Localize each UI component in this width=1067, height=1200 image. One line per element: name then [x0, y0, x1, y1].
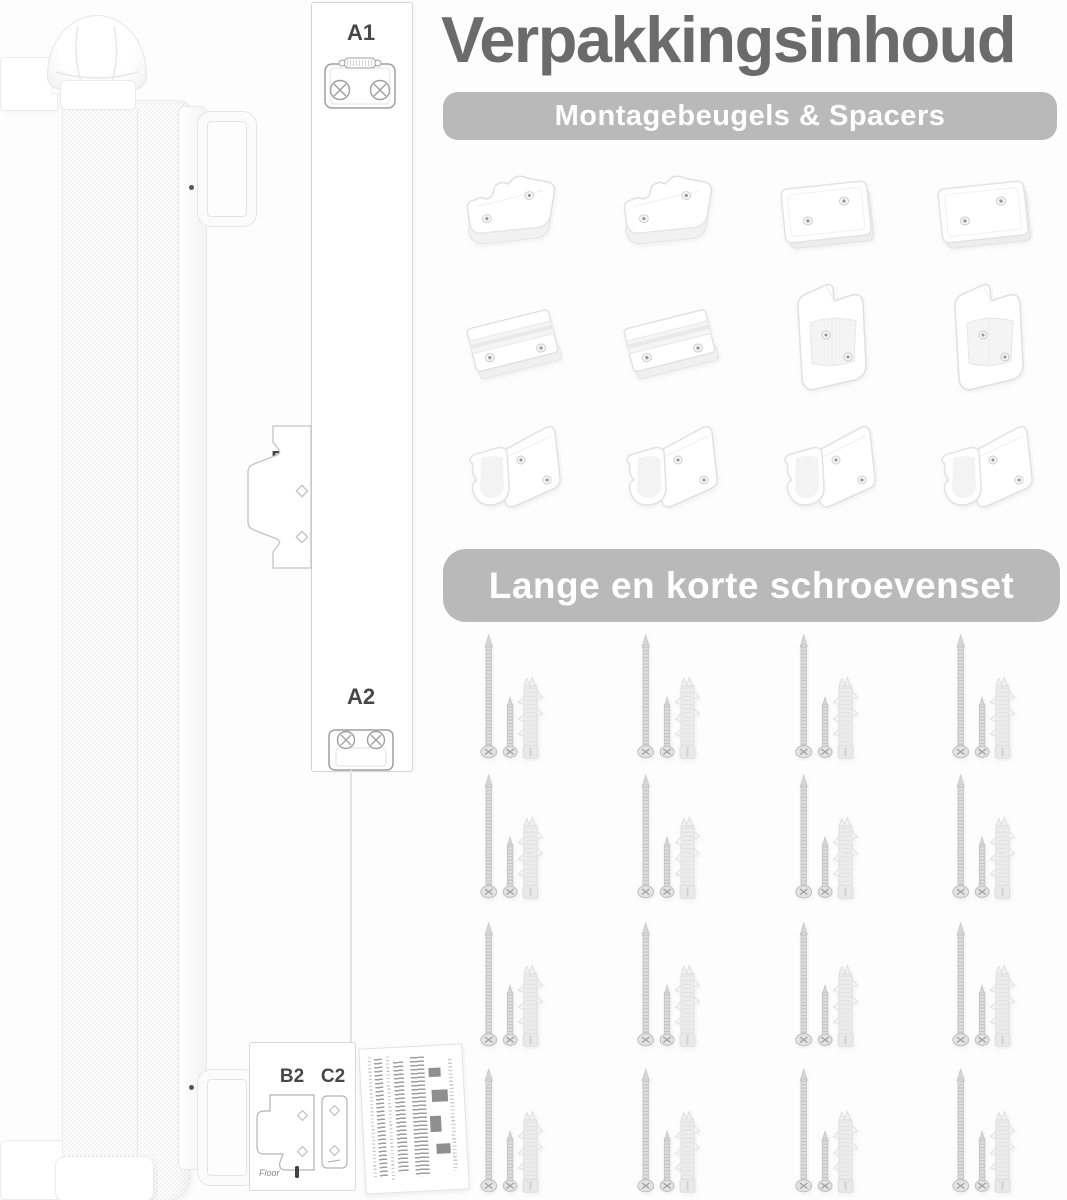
long-screw — [953, 775, 969, 898]
bracket-hook — [929, 420, 1037, 532]
package-contents-image: A1 B1 A2 B2 C2 Floor — [0, 0, 1067, 1200]
screw-set — [792, 632, 860, 762]
wall-plug — [833, 818, 857, 899]
long-screw — [481, 923, 497, 1046]
screw-grid — [432, 628, 1062, 1196]
wall-plug — [676, 1112, 700, 1193]
gate-dome-collar — [60, 80, 136, 110]
bracket-wavy-plate — [458, 165, 564, 253]
gate-roll-pedestal — [55, 1156, 154, 1200]
screw-set — [792, 772, 860, 902]
part-drawing-a1 — [322, 54, 398, 112]
part-label-c2: C2 — [315, 1066, 351, 1088]
part-label-a2: A2 — [311, 684, 411, 710]
bracket-channel — [456, 291, 566, 387]
long-screw — [638, 775, 654, 898]
screw-set — [949, 920, 1017, 1050]
part-drawing-c2 — [320, 1094, 350, 1176]
screw-set — [634, 920, 702, 1050]
long-screw — [638, 635, 654, 758]
short-screw — [818, 837, 832, 897]
screw-set — [477, 920, 545, 1050]
wall-plug — [833, 966, 857, 1047]
bracket-hook — [457, 420, 565, 532]
bracket-flat-plate — [771, 163, 881, 255]
gate-latch-bar — [178, 106, 207, 1170]
long-screw — [796, 775, 812, 898]
wall-plug — [991, 966, 1015, 1047]
short-screw — [503, 1131, 517, 1191]
bracket-flat-plate — [928, 163, 1038, 255]
wall-plug — [518, 818, 542, 899]
part-label-b2: B2 — [272, 1066, 312, 1088]
bracket-corner — [774, 279, 878, 399]
short-screw — [660, 697, 674, 757]
short-screw — [660, 837, 674, 897]
wall-plug — [991, 678, 1015, 759]
short-screw — [660, 1131, 674, 1191]
long-screw — [953, 923, 969, 1046]
short-screw — [975, 837, 989, 897]
screw-set — [792, 1066, 860, 1196]
screw-set — [477, 772, 545, 902]
short-screw — [818, 697, 832, 757]
gate-mesh-roll — [62, 100, 191, 1200]
latch-pin-bottom — [189, 1085, 194, 1090]
wall-plug — [518, 678, 542, 759]
short-screw — [975, 1131, 989, 1191]
short-screw — [975, 985, 989, 1045]
wall-plug — [676, 966, 700, 1047]
screw-set — [634, 632, 702, 762]
connector-line — [350, 770, 352, 1046]
long-screw — [796, 1069, 812, 1192]
part-drawing-a2 — [326, 722, 396, 774]
screw-set — [949, 632, 1017, 762]
short-screw — [503, 837, 517, 897]
short-screw — [503, 697, 517, 757]
long-screw — [638, 1069, 654, 1192]
bracket-wavy-plate — [615, 165, 721, 253]
wall-plug — [518, 1112, 542, 1193]
wall-plug — [518, 966, 542, 1047]
long-screw — [796, 635, 812, 758]
bracket-hook — [614, 420, 722, 532]
wall-plug — [676, 818, 700, 899]
bracket-channel — [613, 291, 723, 387]
gate-bottom-handle — [198, 1070, 256, 1185]
wall-plug — [676, 678, 700, 759]
latch-pin-top — [189, 185, 194, 190]
wall-plug — [991, 1112, 1015, 1193]
long-screw — [953, 1069, 969, 1192]
floor-label: Floor — [259, 1168, 293, 1178]
wall-plug — [833, 1112, 857, 1193]
screw-set — [477, 632, 545, 762]
short-screw — [975, 697, 989, 757]
dome-seams — [48, 16, 146, 90]
screws-banner: Lange en korte schroevenset — [443, 549, 1060, 622]
bracket-hook — [772, 420, 880, 532]
gate-top-handle — [198, 112, 256, 226]
screw-set — [634, 1066, 702, 1196]
screw-set — [634, 772, 702, 902]
part-strip — [311, 2, 413, 772]
long-screw — [481, 1069, 497, 1192]
bracket-grid — [432, 156, 1062, 536]
screw-set — [792, 920, 860, 1050]
bracket-corner — [931, 279, 1035, 399]
part-drawing-b1 — [246, 426, 312, 568]
brackets-banner: Montagebeugels & Spacers — [443, 92, 1057, 140]
mesh-crease-line — [137, 109, 138, 1189]
wall-plug — [833, 678, 857, 759]
long-screw — [638, 923, 654, 1046]
short-screw — [818, 985, 832, 1045]
wall-plug — [991, 818, 1015, 899]
screw-set — [477, 1066, 545, 1196]
short-screw — [818, 1131, 832, 1191]
short-screw — [503, 985, 517, 1045]
part-label-a1: A1 — [311, 20, 411, 46]
long-screw — [953, 635, 969, 758]
page-title: Verpakkingsinhoud — [441, 2, 1067, 86]
long-screw — [481, 635, 497, 758]
screw-set — [949, 772, 1017, 902]
short-screw — [660, 985, 674, 1045]
long-screw — [481, 775, 497, 898]
screw-set — [949, 1066, 1017, 1196]
long-screw — [796, 923, 812, 1046]
